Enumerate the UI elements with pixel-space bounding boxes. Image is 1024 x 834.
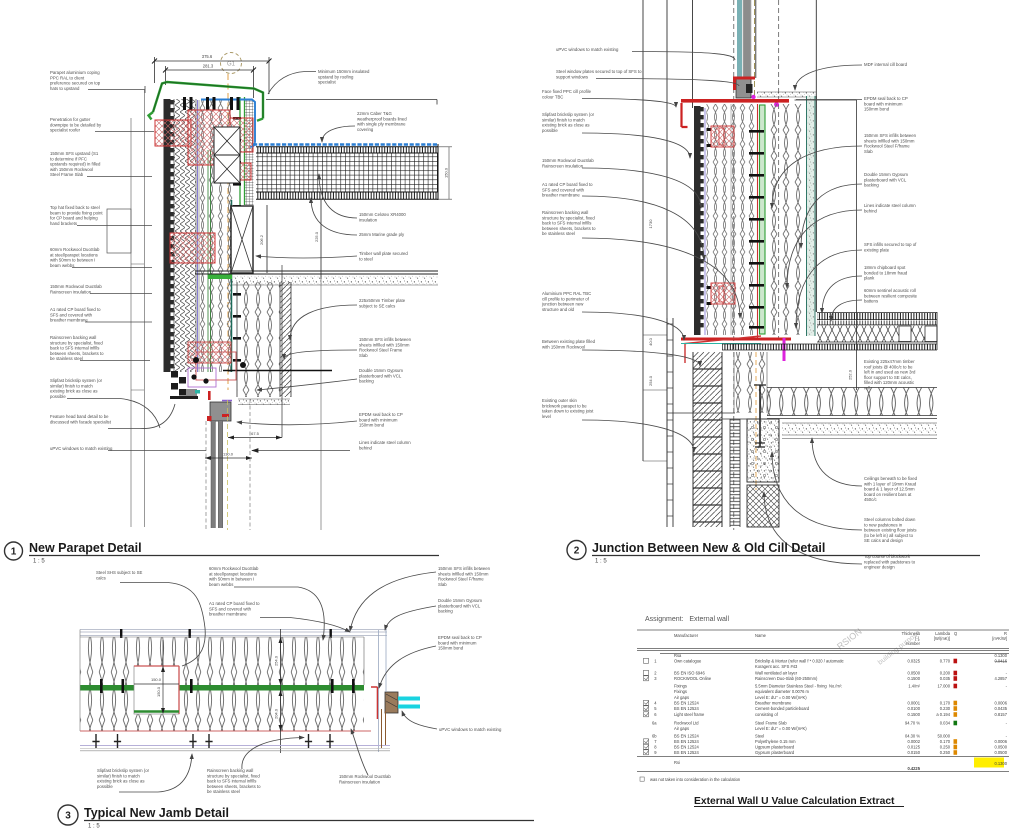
svg-text:0.0500: 0.0500 (994, 750, 1007, 755)
svg-text:New Parapet Detail: New Parapet Detail (29, 541, 142, 555)
svg-text:G1: G1 (227, 62, 236, 68)
svg-text:0.035: 0.035 (940, 676, 951, 681)
svg-text:0.0325: 0.0325 (907, 659, 920, 664)
svg-text:MDF internal cill board: MDF internal cill board (864, 62, 908, 67)
svg-text:150mm SFS upstand (S1 to deter: 150mm SFS upstand (S1 to determine if PF… (50, 151, 102, 177)
svg-text:Steel columns bolted down to n: Steel columns bolted down to new padston… (864, 517, 918, 543)
svg-text:[W/(mK)]: [W/(mK)] (934, 636, 950, 641)
svg-text:-: - (1006, 684, 1008, 689)
svg-text:60mm Rockwool DuoSlab at steel: 60mm Rockwool DuoSlab at steel/parapet l… (209, 566, 260, 587)
svg-text:uPVC windows to match existing: uPVC windows to match existing (50, 446, 113, 451)
svg-text:-: - (1006, 734, 1008, 739)
svg-text:External Wall U Value Calculat: External Wall U Value Calculation Extrac… (694, 796, 895, 807)
svg-text:a 0.194: a 0.194 (936, 712, 950, 717)
svg-text:Rsi: Rsi (674, 760, 680, 765)
svg-text:Rainscreen backing wall struct: Rainscreen backing wall structure by spe… (50, 335, 105, 361)
svg-text:1730: 1730 (648, 219, 653, 229)
svg-text:0.170: 0.170 (940, 701, 951, 706)
svg-text:150mm SFS infills between shee: 150mm SFS infills between sheets infille… (438, 566, 491, 587)
svg-text:Koragent acc. SFS #43: Koragent acc. SFS #43 (755, 664, 798, 669)
svg-text:4: 4 (654, 701, 657, 706)
svg-text:Brickslip & Mortar (refer wall: Brickslip & Mortar (refer wall f * 0.020… (755, 659, 844, 664)
svg-text:0.4225: 0.4225 (907, 766, 920, 771)
svg-text:Rainscreen backing wall struct: Rainscreen backing wall structure by spe… (542, 210, 597, 236)
svg-text:375.6: 375.6 (202, 54, 213, 59)
svg-text:0.0006: 0.0006 (994, 701, 1007, 706)
svg-text:3: 3 (654, 676, 657, 681)
svg-text:Own catalogue: Own catalogue (674, 659, 702, 664)
svg-text:0.250: 0.250 (940, 750, 951, 755)
svg-text:BS EN 12524: BS EN 12524 (674, 734, 700, 739)
svg-text:ROCKWOOL Online: ROCKWOOL Online (674, 676, 712, 681)
svg-text:Timber wall plate secured to s: Timber wall plate secured to steel (359, 251, 409, 261)
svg-text:EPDM seal back to CP board wit: EPDM seal back to CP board with minimum … (864, 96, 909, 112)
svg-text:Double 15mm Gypsum plasterboar: Double 15mm Gypsum plasterboard with VCL… (438, 598, 483, 614)
svg-text:Existing outer skin brickwork: Existing outer skin brickwork parapet to… (542, 398, 595, 419)
svg-text:BS EN 12524: BS EN 12524 (674, 701, 700, 706)
svg-text:-: - (1006, 721, 1008, 726)
svg-text:40.0: 40.0 (648, 337, 653, 346)
svg-text:0.200: 0.200 (940, 671, 951, 676)
svg-text:Breather membrane: Breather membrane (755, 701, 792, 706)
svg-text:0.1300: 0.1300 (994, 761, 1007, 766)
svg-text:0.1300: 0.1300 (994, 653, 1007, 658)
svg-text:Steel SHS subject to SE calcs: Steel SHS subject to SE calcs (96, 570, 144, 580)
svg-text:Top hat fixed back to steel be: Top hat fixed back to steel beam to prov… (50, 205, 104, 226)
svg-text:Rainscreen Duo-Slab (60-250mm): Rainscreen Duo-Slab (60-250mm) (755, 676, 818, 681)
svg-text:SFS infills secured to top of: SFS infills secured to top of existing p… (864, 242, 918, 252)
svg-text:0.0125: 0.0125 (907, 745, 920, 750)
svg-text:254.0: 254.0 (648, 375, 653, 386)
svg-text:Level E: dU″ = 0.00 W/(m²K): Level E: dU″ = 0.00 W/(m²K) (755, 726, 807, 731)
svg-text:0.0001: 0.0001 (907, 701, 920, 706)
svg-text:Steel window plates secured to: Steel window plates secured to top of SF… (556, 69, 643, 79)
svg-text:225.0: 225.0 (314, 231, 319, 242)
svg-text:Level E: dU″ = 0.00 W/(m²K): Level E: dU″ = 0.00 W/(m²K) (755, 695, 807, 700)
svg-text:1.4/m²: 1.4/m² (908, 684, 920, 689)
svg-text:150mm Rockwool DuoSlab Rainscr: 150mm Rockwool DuoSlab Rainscreen insula… (50, 284, 103, 294)
svg-text:Wall ventilated air layer: Wall ventilated air layer (755, 671, 798, 676)
svg-text:Double 15mm Gypsum plasterboar: Double 15mm Gypsum plasterboard with VCL… (864, 172, 909, 188)
svg-text:5.5mm Diameter Stainless Steel: 5.5mm Diameter Stainless Steel - fixing … (755, 684, 842, 689)
svg-text:60mm sentinel acoustic roll be: 60mm sentinel acoustic roll between resi… (864, 288, 918, 304)
svg-text:50.000: 50.000 (937, 734, 950, 739)
svg-text:Polyethylene 0.15 mm: Polyethylene 0.15 mm (755, 739, 796, 744)
svg-text:0.170: 0.170 (940, 739, 951, 744)
svg-text:204.0: 204.0 (274, 708, 279, 719)
svg-text:Face fixed PPC cill profile co: Face fixed PPC cill profile colour TBC (542, 89, 592, 99)
svg-text:0.0002: 0.0002 (907, 739, 920, 744)
svg-text:Penetration for gutter downpip: Penetration for gutter downpipe to be de… (50, 117, 102, 133)
svg-text:9: 9 (654, 750, 657, 755)
svg-text:225x50mm Timber plate subject: 225x50mm Timber plate subject to SE calc… (359, 298, 406, 308)
svg-text:8: 8 (654, 745, 657, 750)
svg-text:4.2857: 4.2857 (994, 676, 1007, 681)
svg-text:Fixings: Fixings (674, 684, 687, 689)
svg-text:[m²K/W]: [m²K/W] (992, 636, 1007, 641)
svg-text:150mm Rockwool DuoSlab Rainscr: 150mm Rockwool DuoSlab Rainscreen insula… (339, 774, 392, 784)
svg-text:5: 5 (654, 706, 657, 711)
svg-text:Slipfast brickslip system (or: Slipfast brickslip system (or similar) f… (542, 112, 595, 133)
svg-text:0.250: 0.250 (940, 745, 951, 750)
svg-text:uPVC windows to match existing: uPVC windows to match existing (439, 727, 502, 732)
svg-text:0.0006: 0.0006 (994, 739, 1007, 744)
svg-text:BS EN 12524: BS EN 12524 (674, 739, 700, 744)
svg-text:0.0416: 0.0416 (994, 659, 1007, 664)
svg-text:BS EN 12524: BS EN 12524 (674, 706, 700, 711)
svg-text:22mm Caber T&G weatherproof bo: 22mm Caber T&G weatherproof boards lined… (357, 111, 408, 132)
svg-text:Double 15mm Gypsum plasterboar: Double 15mm Gypsum plasterboard with VCL… (359, 368, 404, 384)
svg-text:150.0: 150.0 (151, 677, 162, 682)
svg-text:0.1500: 0.1500 (907, 712, 920, 717)
svg-text:150.0: 150.0 (444, 167, 449, 178)
svg-text:150mm SFS infills between shee: 150mm SFS infills between sheets infille… (359, 337, 412, 358)
svg-text:0.770: 0.770 (940, 659, 951, 664)
svg-text:A1 rated CP board fixed to SFS: A1 rated CP board fixed to SFS and cover… (209, 601, 261, 617)
svg-text:3: 3 (65, 811, 71, 822)
svg-text:Steel Frame Slab: Steel Frame Slab (755, 721, 787, 726)
svg-text:281.3: 281.3 (203, 64, 214, 69)
svg-text:Manufacturer: Manufacturer (674, 633, 699, 638)
svg-text:Ceilings beneath to be fixed w: Ceilings beneath to be fixed with 1 laye… (864, 476, 918, 502)
svg-text:18mm chipboard spot bonded to: 18mm chipboard spot bonded to 18mm fraud… (864, 265, 908, 281)
svg-text:EPDM seal back to CP board wit: EPDM seal back to CP board with minimum … (438, 635, 483, 651)
svg-text:A1 rated CP board fixed to SFS: A1 rated CP board fixed to SFS and cover… (542, 182, 594, 198)
svg-text:Aluminium PPC RAL TBC cill pro: Aluminium PPC RAL TBC cill profile to pe… (541, 291, 592, 312)
svg-text:67.5: 67.5 (251, 431, 260, 436)
svg-text:Ugpsum plasterboard: Ugpsum plasterboard (755, 745, 795, 750)
svg-text:uPVC windows to match existing: uPVC windows to match existing (556, 47, 619, 52)
svg-text:Q: Q (954, 631, 957, 636)
svg-text:1: 1 (11, 547, 17, 558)
svg-text:0.0500: 0.0500 (994, 745, 1007, 750)
svg-text:252.0: 252.0 (848, 369, 853, 380)
svg-text:BS EN ISO 6946: BS EN ISO 6946 (674, 671, 705, 676)
svg-text:Assignment: External wall: Assignment: External wall (645, 616, 729, 623)
svg-text:0.0100: 0.0100 (907, 706, 920, 711)
svg-text:Minimum 150mm insulated upstan: Minimum 150mm insulated upstand by roofi… (318, 69, 371, 85)
svg-text:Air gaps: Air gaps (674, 726, 689, 731)
svg-text:150mm Celotex XR4000 insulatio: 150mm Celotex XR4000 insulation (359, 212, 407, 222)
svg-text:2: 2 (574, 546, 580, 557)
svg-text:6b: 6b (652, 734, 657, 739)
svg-text:6: 6 (654, 712, 657, 717)
svg-text:Slipfast brickslip system (or: Slipfast brickslip system (or similar) f… (50, 378, 103, 399)
svg-text:6a: 6a (652, 721, 657, 726)
svg-text:EPDM seal back to CP board wit: EPDM seal back to CP board with minimum … (359, 412, 404, 428)
svg-text:150mm SFS infills between shee: 150mm SFS infills between sheets infille… (864, 133, 917, 154)
svg-text:-: - (1006, 671, 1008, 676)
svg-text:Parapet aluminium coping PPC R: Parapet aluminium coping PPC RAL to clie… (50, 70, 101, 91)
svg-text:Between existing plate filled: Between existing plate filled with 150mm… (542, 339, 596, 349)
svg-text:Slipfast brickslip system (or: Slipfast brickslip system (or similar) f… (97, 768, 150, 789)
svg-text:0.034: 0.034 (940, 721, 951, 726)
svg-text:Rockwool Ltd: Rockwool Ltd (674, 721, 699, 726)
svg-text:Typical New Jamb Detail: Typical New Jamb Detail (84, 806, 229, 820)
svg-text:1 : 5: 1 : 5 (595, 559, 607, 565)
svg-text:Steel: Steel (755, 734, 764, 739)
svg-text:Light steel frame: Light steel frame (674, 712, 705, 717)
svg-text:Cement-bonded particleboard: Cement-bonded particleboard (755, 706, 810, 711)
svg-text:Top course of blockwork replac: Top course of blockwork replaced with pa… (864, 554, 916, 570)
svg-text:0.8157: 0.8157 (994, 712, 1007, 717)
svg-text:150.0: 150.0 (156, 686, 161, 697)
svg-text:0.0435: 0.0435 (994, 706, 1007, 711)
svg-text:consisting of: consisting of (755, 712, 779, 717)
svg-text:60mm Rockwool DuoSlab at steel: 60mm Rockwool DuoSlab at steel/parapet l… (50, 247, 101, 268)
svg-text:Fixings: Fixings (674, 689, 687, 694)
svg-text:Feature head band detail to be: Feature head band detail to be discussed… (50, 414, 112, 424)
svg-text:Rsa: Rsa (674, 653, 682, 658)
svg-text:Junction Between New & Old Cil: Junction Between New & Old Cill Detail (592, 541, 825, 555)
svg-text:17.000: 17.000 (937, 684, 950, 689)
svg-text:206.2: 206.2 (259, 234, 264, 245)
svg-text:130.0: 130.0 (223, 452, 234, 457)
svg-text:0.0500: 0.0500 (907, 671, 920, 676)
svg-text:number: number (906, 641, 921, 646)
svg-text:1 : 5: 1 : 5 (88, 824, 100, 830)
svg-text:254.0: 254.0 (274, 655, 279, 666)
svg-text:Lines indicate steel column be: Lines indicate steel column behind (864, 203, 917, 213)
svg-text:was not taken into considerati: was not taken into consideration in the … (650, 777, 741, 782)
svg-text:Name: Name (755, 633, 767, 638)
svg-text:150mm Rockwool DuoSlab Rainscr: 150mm Rockwool DuoSlab Rainscreen insula… (542, 158, 595, 168)
svg-text:0.1500: 0.1500 (907, 676, 920, 681)
svg-text:0.230: 0.230 (940, 706, 951, 711)
svg-text:94.70 %: 94.70 % (905, 721, 920, 726)
svg-text:2: 2 (654, 671, 657, 676)
svg-text:Air gaps: Air gaps (674, 695, 689, 700)
svg-text:25mm Marine grade ply: 25mm Marine grade ply (359, 232, 405, 237)
svg-text:Existing 225x47mm timber roof: Existing 225x47mm timber roof joists @ 4… (864, 359, 917, 391)
svg-text:Gypsum plasterboard: Gypsum plasterboard (755, 750, 795, 755)
svg-text:1 : 5: 1 : 5 (33, 559, 45, 565)
svg-text:Lines indicate steel column be: Lines indicate steel column behind (359, 440, 412, 450)
svg-text:BS EN 12524: BS EN 12524 (674, 745, 700, 750)
svg-text:04.30 %: 04.30 % (905, 734, 920, 739)
svg-text:A1 rated CP board fixed to SFS: A1 rated CP board fixed to SFS and cover… (50, 307, 102, 323)
svg-text:equivalent diameter 0.0076 m: equivalent diameter 0.0076 m (755, 689, 810, 694)
svg-text:BS EN 12524: BS EN 12524 (674, 750, 700, 755)
svg-text:1: 1 (654, 659, 657, 664)
svg-text:7: 7 (654, 739, 657, 744)
svg-text:Rainscreen backing wall struct: Rainscreen backing wall structure by spe… (207, 768, 262, 794)
svg-text:0.0150: 0.0150 (907, 750, 920, 755)
